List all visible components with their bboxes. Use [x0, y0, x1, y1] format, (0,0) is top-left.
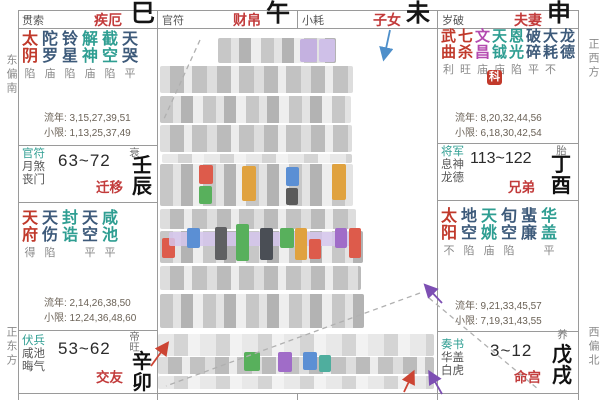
censored-color-block — [244, 352, 260, 371]
branch-wei: 未 — [406, 1, 430, 27]
censored-color-block — [286, 167, 299, 186]
censored-mosaic — [158, 334, 434, 356]
grid-line — [578, 10, 579, 400]
star-column: 旬空陷 — [501, 208, 517, 257]
bottom-sliver-yin: 小三天 — [26, 396, 98, 400]
palace-name: 命宫 — [514, 366, 541, 386]
star-column: 蜚廉 — [521, 208, 537, 257]
star-list: 武曲利七杀旺文昌庙天钺庙恩光陷破碎平大耗不龙德 — [441, 29, 577, 76]
star-column: 华盖平 — [541, 208, 557, 257]
liunian-ages: 流年: 3,15,27,39,51 — [44, 112, 131, 125]
palace-name: 交友 — [96, 366, 123, 386]
ribbon-palace-wu: 财帛 — [233, 10, 261, 30]
grid-line — [297, 393, 298, 400]
ribbon-god-si: 贯索 — [22, 12, 44, 28]
censored-color-block — [300, 39, 317, 62]
xiaoxian-ages: 小限: 12,24,36,48,60 — [44, 312, 136, 325]
xiaoxian-ages: 小限: 7,19,31,43,55 — [455, 315, 542, 328]
grid-line — [18, 10, 19, 400]
decade-range: 53~62 — [58, 339, 111, 359]
gods-list: 官符月煞丧门 — [22, 148, 45, 187]
stem-branch: 戊戌 — [552, 345, 572, 387]
gods-list: 将军息神龙德 — [441, 146, 464, 185]
star-list: 天府得天伤陷封诰 天空平咸池平 — [22, 210, 122, 259]
star-column: 武曲利 — [441, 29, 456, 76]
changsheng-state: 养 — [556, 329, 568, 340]
censored-color-block — [332, 164, 346, 200]
blue-arrow — [384, 30, 390, 58]
decade-range: 3~12 — [490, 341, 532, 361]
ribbon-palace-wei: 子女 — [373, 10, 401, 30]
ribbon-god-wu: 官符 — [162, 12, 184, 28]
stem-branch: 辛卯 — [132, 352, 152, 394]
star-column: 恩光陷 — [509, 29, 524, 76]
liunian-ages: 流年: 9,21,33,45,57 — [455, 300, 542, 313]
palace-name: 兄弟 — [508, 176, 535, 196]
palace-name: 迁移 — [96, 176, 123, 196]
god-name: 晦气 — [22, 361, 45, 374]
censored-color-block — [187, 228, 200, 248]
star-column: 天哭平 — [122, 31, 138, 80]
decade-range: 63~72 — [58, 151, 111, 171]
bottom-sliver-zi: 天地八天天天 — [302, 396, 422, 400]
god-name: 伏兵 — [22, 335, 45, 348]
branch-si: 巳 — [131, 1, 155, 27]
star-list: 太阴陷陀罗庙铃星陷解神庙截空陷天哭平 — [22, 31, 142, 80]
censored-mosaic — [160, 125, 352, 152]
purple-arrow — [426, 286, 442, 303]
compass-east-south: 东偏南 — [3, 54, 19, 96]
star-column: 陀罗庙 — [42, 31, 58, 80]
ribbon-palace-shen: 夫妻 — [514, 10, 542, 30]
grid-line — [437, 10, 438, 400]
star-list: 太阳不地空陷天姚庙旬空陷蜚廉 华盖平 — [441, 208, 561, 257]
star-column: 龙德 — [560, 29, 575, 76]
compass-west: 正西方 — [585, 38, 600, 80]
stem-branch: 壬辰 — [132, 156, 152, 198]
star-column: 铃星陷 — [62, 31, 78, 80]
grid-line — [18, 145, 157, 146]
censored-color-block — [319, 355, 331, 372]
censored-color-block — [215, 227, 227, 260]
god-name: 月煞 — [22, 161, 45, 174]
censored-color-block — [242, 166, 256, 201]
censored-color-block — [199, 165, 213, 184]
censored-color-block — [349, 228, 361, 258]
censored-mosaic — [160, 96, 351, 123]
gods-list: 奏书华盖白虎 — [441, 339, 464, 378]
censored-color-block — [286, 188, 298, 205]
branch-shen: 申 — [547, 1, 571, 27]
censored-mosaic — [160, 209, 356, 229]
decade-range: 113~122 — [470, 150, 532, 168]
god-name: 奏书 — [441, 339, 464, 352]
star-column: 七杀旺 — [458, 29, 473, 76]
censored-color-block — [199, 186, 212, 204]
compass-west-north: 西偏北 — [585, 326, 600, 368]
star-column: 天伤陷 — [42, 210, 58, 259]
hua-ke-badge: 科 — [487, 70, 502, 85]
grid-line — [18, 202, 157, 203]
censored-color-block — [303, 352, 317, 370]
censored-mosaic — [160, 266, 361, 290]
xiaoxian-ages: 小限: 6,18,30,42,54 — [455, 127, 542, 140]
god-name: 丧门 — [22, 174, 45, 187]
censored-color-block — [295, 228, 307, 260]
ribbon-god-wei: 小耗 — [302, 12, 324, 28]
censored-color-block — [236, 224, 249, 261]
censored-color-block — [260, 228, 273, 260]
bottom-sliver-hai: 天刑铃天 — [443, 396, 527, 400]
grid-line — [18, 393, 578, 394]
star-column: 封诰 — [62, 210, 78, 259]
god-name: 将军 — [441, 146, 464, 159]
star-column: 截空陷 — [102, 31, 118, 80]
liunian-ages: 流年: 2,14,26,38,50 — [44, 297, 131, 310]
grid-line — [437, 200, 578, 201]
ziwei-chart: 东偏南 正东方 正西方 西偏北 贯索 疾厄 巳 官符 财帛 午 小耗 子女 未 … — [0, 0, 600, 400]
star-column: 天府得 — [22, 210, 38, 259]
star-column: 天姚庙 — [481, 208, 497, 257]
censored-mosaic — [160, 66, 353, 93]
star-column: 文昌庙 — [475, 29, 490, 76]
censored-color-block — [278, 352, 292, 372]
star-column: 天空平 — [82, 210, 98, 259]
god-name: 龙德 — [441, 172, 464, 185]
branch-wu: 午 — [266, 1, 290, 27]
star-column: 大耗不 — [543, 29, 558, 76]
god-name: 官符 — [22, 148, 45, 161]
censored-mosaic — [158, 376, 434, 389]
censored-color-block — [309, 239, 321, 259]
gods-list: 伏兵咸池晦气 — [22, 335, 45, 374]
bottom-sliver-chou: 紫破左右红鸾 — [164, 396, 290, 400]
censored-color-block — [335, 228, 347, 248]
censored-color-block — [319, 39, 335, 62]
xiaoxian-ages: 小限: 1,13,25,37,49 — [44, 127, 131, 140]
star-column: 地空陷 — [461, 208, 477, 257]
censored-mosaic — [160, 294, 364, 328]
compass-east: 正东方 — [3, 326, 19, 368]
star-column: 解神庙 — [82, 31, 98, 80]
ribbon-palace-si: 疾厄 — [94, 10, 122, 30]
grid-line — [297, 10, 298, 28]
star-column: 天钺庙 — [492, 29, 507, 76]
god-name: 息神 — [441, 159, 464, 172]
grid-line — [437, 143, 578, 144]
changsheng-state: 帝旺 — [128, 331, 140, 352]
star-column: 破碎平 — [526, 29, 541, 76]
ribbon-god-shen: 岁破 — [442, 12, 464, 28]
god-name: 白虎 — [441, 365, 464, 378]
liunian-ages: 流年: 8,20,32,44,56 — [455, 112, 542, 125]
star-column: 太阴陷 — [22, 31, 38, 80]
censored-mosaic — [158, 357, 434, 374]
star-column: 太阳不 — [441, 208, 457, 257]
censored-color-block — [280, 228, 294, 248]
god-name: 咸池 — [22, 348, 45, 361]
god-name: 华盖 — [441, 352, 464, 365]
star-column: 咸池平 — [102, 210, 118, 259]
stem-branch: 丁酉 — [551, 155, 571, 197]
censored-mosaic — [162, 154, 352, 163]
censored-mosaic — [160, 164, 353, 206]
